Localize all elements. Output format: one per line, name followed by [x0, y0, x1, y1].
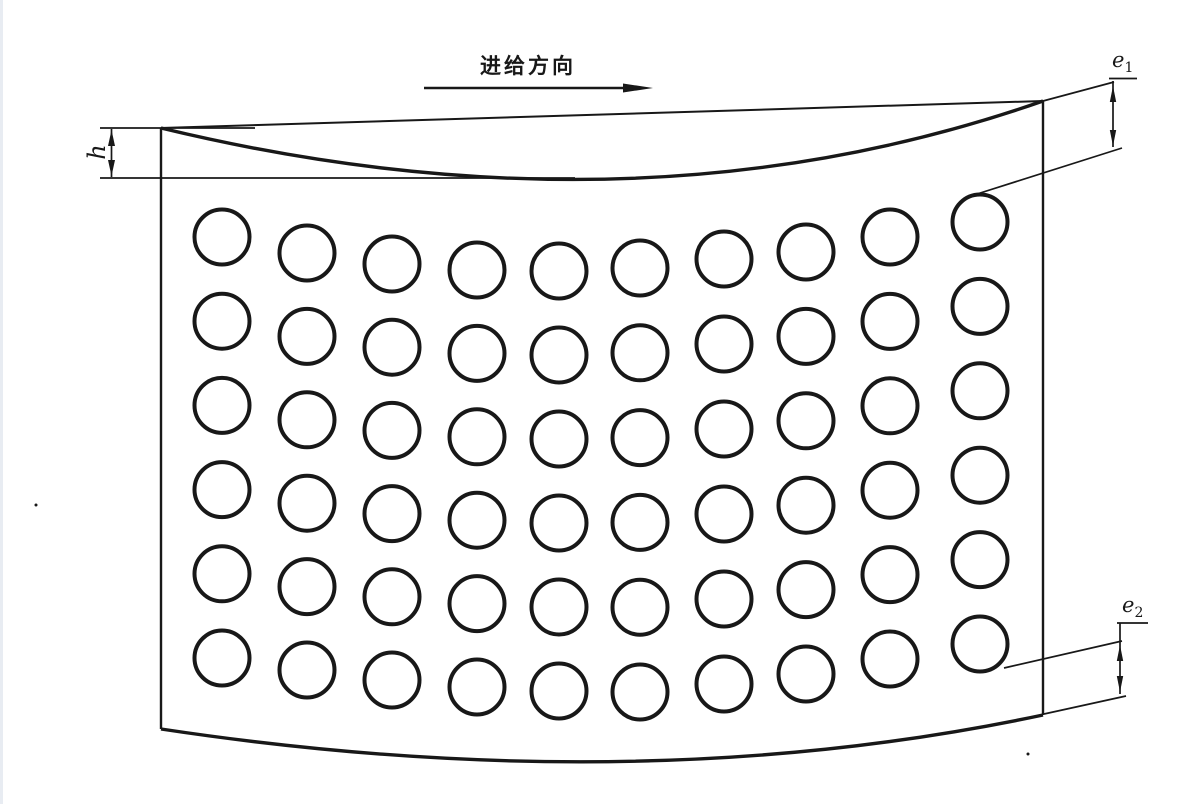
hole — [532, 496, 587, 551]
hole — [863, 547, 918, 602]
hole — [195, 462, 250, 517]
hole — [613, 580, 668, 635]
hole — [697, 317, 752, 372]
hole — [450, 409, 505, 464]
hole — [779, 393, 834, 448]
wear-curve — [161, 101, 1043, 179]
hole — [532, 244, 587, 299]
e2-arrow-down — [1117, 676, 1123, 692]
hole — [697, 402, 752, 457]
hole — [697, 232, 752, 287]
hole — [280, 643, 335, 698]
e1-arrow-up — [1110, 86, 1116, 102]
holes-layer — [195, 195, 1008, 720]
hole — [697, 572, 752, 627]
hole — [779, 647, 834, 702]
hole — [450, 576, 505, 631]
h-arrow-down — [108, 160, 115, 176]
hole — [195, 378, 250, 433]
hole — [953, 279, 1008, 334]
feed-direction-arrowhead — [623, 84, 653, 93]
hole — [280, 559, 335, 614]
e1-dimension-label: e1 — [1112, 48, 1133, 72]
technical-drawing-page: 进给方向 h e1 e2 — [0, 0, 1200, 804]
hole — [365, 569, 420, 624]
e2-leader-lower — [1044, 696, 1126, 714]
hole — [450, 660, 505, 715]
e1-leader-upper — [1043, 82, 1114, 101]
scan-speck — [1027, 753, 1030, 756]
hole — [532, 328, 587, 383]
hole — [863, 632, 918, 687]
hole — [450, 493, 505, 548]
e2-base: e — [1122, 593, 1134, 617]
hole — [697, 487, 752, 542]
hole — [863, 294, 918, 349]
hole — [195, 294, 250, 349]
hole — [450, 326, 505, 381]
hole — [953, 448, 1008, 503]
hole — [450, 243, 505, 298]
hole — [953, 363, 1008, 418]
hole — [613, 665, 668, 720]
hole — [779, 478, 834, 533]
hole — [365, 403, 420, 458]
drawing-canvas — [0, 0, 1200, 804]
hole — [365, 486, 420, 541]
e1-base: e — [1112, 48, 1124, 72]
hole — [195, 546, 250, 601]
hole — [863, 210, 918, 265]
hole — [532, 412, 587, 467]
hole — [365, 237, 420, 292]
hole — [953, 195, 1008, 250]
hole — [532, 580, 587, 635]
e2-dimension-label: e2 — [1122, 593, 1143, 617]
hole — [365, 320, 420, 375]
hole — [779, 562, 834, 617]
h-dimension-label: h — [83, 138, 109, 166]
hole — [953, 532, 1008, 587]
hole — [779, 225, 834, 280]
hole — [697, 657, 752, 712]
e2-arrow-up — [1117, 645, 1123, 661]
hole — [280, 476, 335, 531]
hole — [779, 309, 834, 364]
hole — [532, 664, 587, 719]
hole — [280, 392, 335, 447]
hole — [280, 226, 335, 281]
hole — [613, 495, 668, 550]
hole — [613, 241, 668, 296]
hole — [613, 325, 668, 380]
hole — [365, 653, 420, 708]
hole — [863, 463, 918, 518]
hole — [195, 210, 250, 265]
e2-leader-upper — [1004, 641, 1122, 668]
plate-bottom-edge — [161, 715, 1043, 762]
hole — [863, 378, 918, 433]
e1-leader-lower — [977, 148, 1122, 194]
e2-subscript: 2 — [1134, 605, 1143, 621]
feed-direction-label: 进给方向 — [408, 50, 648, 78]
plate-top-edge — [161, 101, 1043, 128]
hole — [195, 631, 250, 686]
hole — [280, 309, 335, 364]
e1-subscript: 1 — [1124, 60, 1133, 76]
hole — [613, 410, 668, 465]
hole — [953, 617, 1008, 672]
scan-speck — [35, 504, 38, 507]
e1-arrow-down — [1110, 130, 1116, 146]
